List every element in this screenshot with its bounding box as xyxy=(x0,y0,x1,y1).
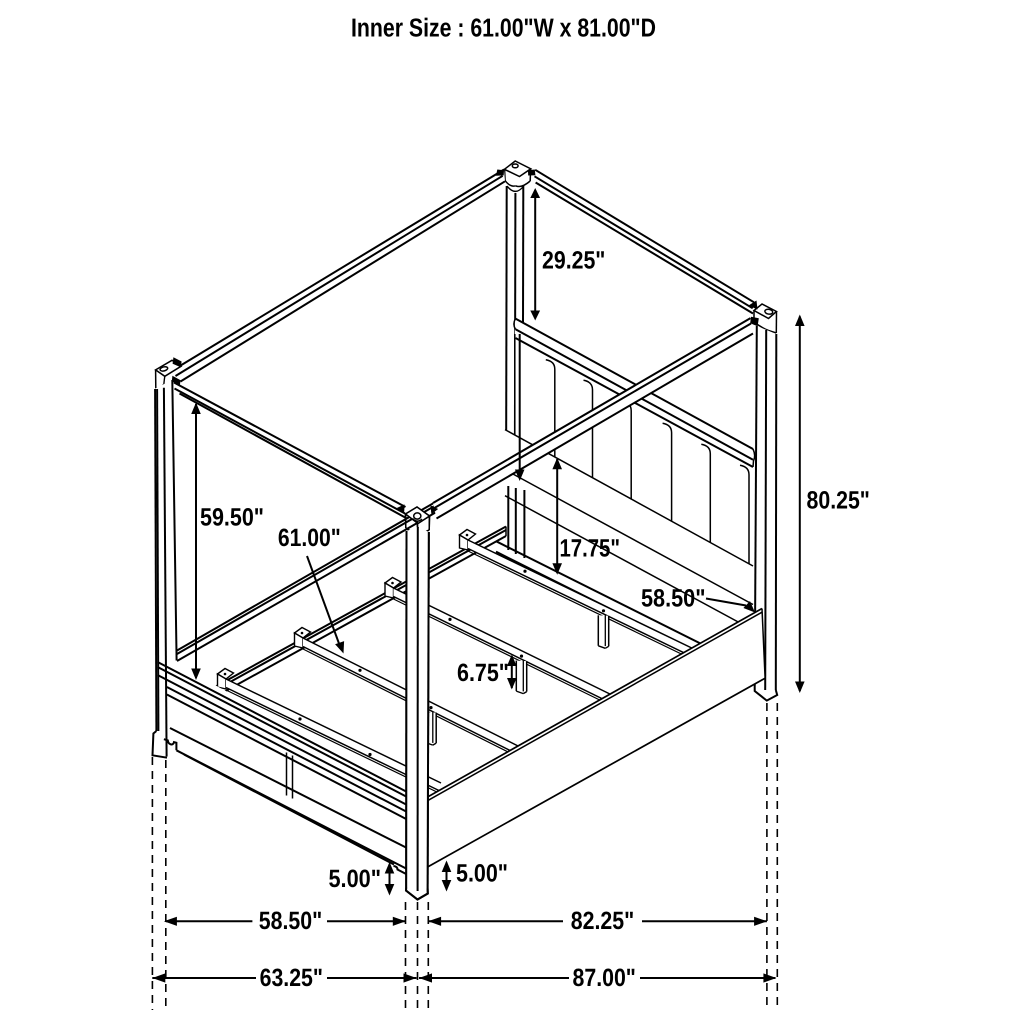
svg-text:63.25": 63.25" xyxy=(260,964,323,992)
svg-text:80.25": 80.25" xyxy=(807,487,870,515)
svg-text:5.00": 5.00" xyxy=(456,860,508,888)
svg-text:6.75": 6.75" xyxy=(457,659,509,687)
svg-text:58.50": 58.50" xyxy=(259,907,322,935)
svg-text:29.25": 29.25" xyxy=(542,247,605,275)
svg-text:82.25": 82.25" xyxy=(571,907,634,935)
svg-text:61.00": 61.00" xyxy=(278,524,341,552)
svg-text:87.00": 87.00" xyxy=(573,964,636,992)
svg-text:17.75": 17.75" xyxy=(560,535,621,563)
svg-text:5.00": 5.00" xyxy=(329,865,382,893)
svg-text:59.50": 59.50" xyxy=(200,504,264,532)
svg-text:Inner Size : 61.00"W x 81.00"D: Inner Size : 61.00"W x 81.00"D xyxy=(351,13,656,43)
svg-text:58.50": 58.50" xyxy=(641,585,706,613)
